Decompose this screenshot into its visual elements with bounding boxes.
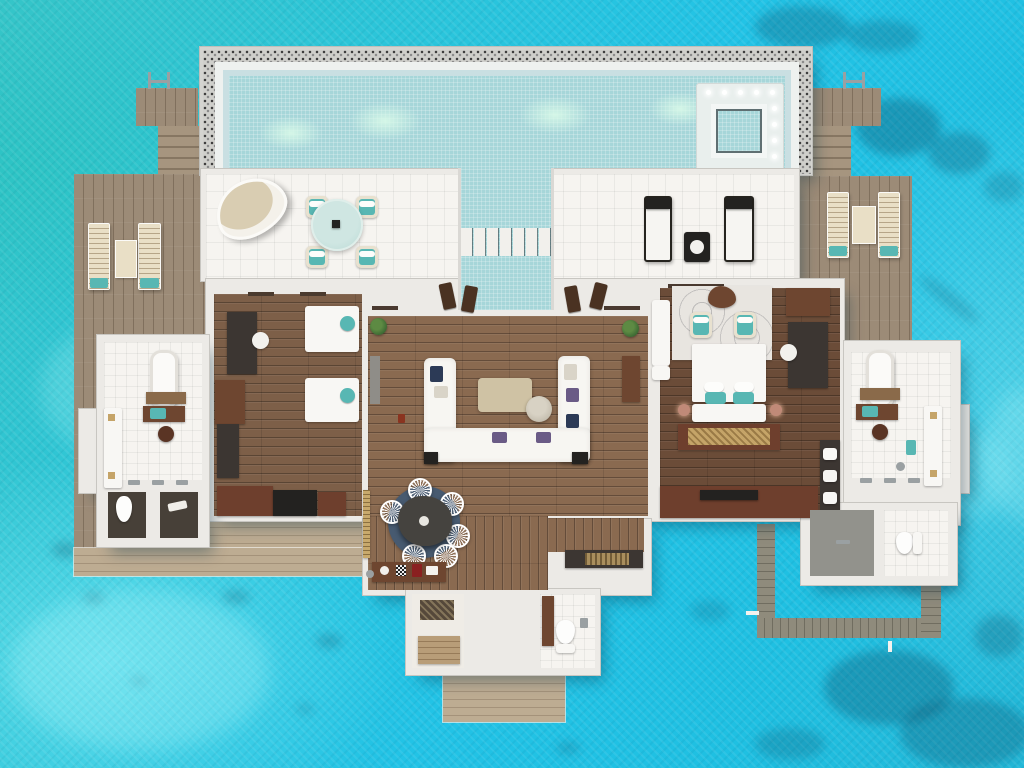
checkered-box [396, 565, 406, 576]
wc-cabinet [542, 596, 554, 646]
bedroom-chair [690, 312, 712, 338]
stepping-stone [500, 228, 511, 256]
sofa-pillow-purple [566, 388, 579, 402]
fixture [152, 480, 164, 485]
door-frame [248, 292, 274, 296]
lounger-pillow [880, 246, 898, 256]
bed-pillow [340, 316, 355, 331]
jacuzzi-light [738, 90, 743, 95]
coral-patch [900, 698, 1024, 768]
tub-shelf [860, 388, 900, 400]
coral-patch [984, 172, 1024, 202]
red-box [412, 564, 422, 577]
bedside-lamp [678, 404, 690, 416]
floor-planter [572, 452, 588, 464]
jacuzzi-light [722, 90, 727, 95]
bar-runner [585, 553, 629, 565]
jacuzzi-light [754, 90, 759, 95]
flat-tv [700, 490, 758, 500]
jacuzzi-light [770, 90, 775, 95]
frame-cleat [888, 641, 892, 652]
sofa-pillow [434, 386, 448, 398]
door-frame [604, 306, 640, 310]
bed-pillow-teal [705, 392, 726, 404]
desk-chair [252, 332, 269, 349]
bath-stool [158, 426, 174, 442]
coffee-cup [380, 566, 389, 575]
vanity-chair [780, 344, 797, 361]
water-frame-right-beam [921, 584, 941, 638]
folded-towel-teal [862, 406, 878, 417]
fixture [176, 480, 188, 485]
villa-floor-plan-render [0, 0, 1024, 768]
lounger-pillow [829, 246, 847, 256]
patio-chair [306, 246, 328, 268]
steps-right [813, 126, 851, 178]
coral-patch [222, 590, 250, 604]
fixture [128, 480, 140, 485]
potted-plant [622, 320, 639, 337]
coral-patch [316, 634, 342, 648]
towel-stack-teal [906, 440, 916, 455]
sofa-pillow [564, 364, 577, 380]
faucet-gold [108, 472, 115, 479]
faucet-gold [108, 414, 115, 421]
jacuzzi-water [716, 109, 762, 153]
coral-patch [755, 6, 850, 48]
king-bed-foot [692, 404, 766, 422]
bed-pillow-teal [733, 392, 754, 404]
jacuzzi-light [772, 122, 777, 127]
wall-panel [370, 356, 380, 404]
decor-object [398, 414, 405, 423]
stepping-stone [539, 228, 550, 256]
linen-stack [652, 366, 670, 380]
sofa-pillow-purple [536, 432, 551, 443]
coral-patch [296, 704, 314, 714]
stepping-stone [461, 228, 472, 256]
sofa-pillow-navy [430, 366, 443, 382]
entrance-deck-platform [443, 676, 565, 722]
gold-screen [363, 490, 370, 558]
sofa-pillow-navy [566, 414, 579, 428]
luggage-bench [652, 300, 670, 366]
toilet-tank [913, 532, 922, 554]
coral-patch [755, 728, 825, 760]
pool-ladder-right-icon [843, 72, 865, 89]
jacuzzi-light [772, 106, 777, 111]
fixture [884, 478, 896, 483]
shower-stall-floor [160, 492, 198, 538]
stepping-stone [513, 228, 524, 256]
patio-chair [356, 246, 378, 268]
pool-ladder-left-icon [148, 72, 170, 89]
jacuzzi [697, 84, 783, 172]
coffee-table [478, 378, 532, 412]
master-wardrobe [786, 288, 830, 316]
shelf-box [823, 492, 837, 504]
stepping-stone [526, 228, 537, 256]
coral-patch [928, 132, 990, 174]
table-centerpiece [332, 220, 340, 228]
ice-bucket [366, 570, 374, 578]
wc-sink [580, 618, 588, 628]
dresser [318, 492, 346, 516]
luggage-bench [418, 636, 460, 664]
steps-left [158, 126, 200, 178]
bedroom-chair [734, 312, 756, 338]
walkway-below-bedroom [208, 520, 368, 548]
fixture [860, 478, 872, 483]
bath-stool [872, 424, 888, 440]
pool-light-glow [349, 102, 421, 140]
chaise-headrest [726, 198, 752, 209]
tall-cabinet [217, 424, 239, 478]
toilet-tank [556, 644, 575, 653]
walkway-below-bathroom [74, 548, 368, 576]
sand-shallow [10, 590, 270, 750]
rug-ornament [708, 286, 736, 308]
stepping-stone [487, 228, 498, 256]
bed-pillow [340, 388, 355, 403]
king-bed-headboard [692, 344, 766, 402]
bar-nook-floor [548, 518, 644, 552]
fixture [908, 478, 920, 483]
pool-light-glow [259, 116, 323, 150]
frame-cleat [746, 611, 759, 615]
pool-access-platform-left [136, 88, 198, 126]
stepping-stone [474, 228, 485, 256]
shelf-box [823, 448, 837, 460]
jacuzzi-light [706, 90, 711, 95]
coral-patch [556, 742, 580, 754]
faucet-gold [930, 470, 937, 477]
potted-plant [370, 318, 387, 335]
shelf-box [823, 470, 837, 482]
chaise-headrest [646, 198, 670, 209]
pool-light-glow [519, 96, 591, 134]
sofa-bottom [424, 428, 590, 462]
lounger-pillow [140, 278, 159, 288]
water-frame-bottom-beam [757, 618, 941, 638]
woven-mat [420, 600, 454, 620]
bedside-lamp [770, 404, 782, 416]
tray [690, 240, 704, 254]
tray [426, 566, 438, 575]
coral-patch [975, 615, 1023, 657]
tv-console [273, 490, 317, 516]
table-plate [419, 516, 429, 526]
deck-table [115, 240, 137, 278]
pool-access-platform-right [813, 88, 881, 126]
folded-towel-teal [150, 408, 166, 419]
side-table [526, 396, 552, 422]
sofa-pillow-purple [492, 432, 507, 443]
shower-handle [836, 540, 850, 544]
floor-planter [424, 452, 438, 464]
coral-patch [845, 20, 920, 52]
wardrobe [215, 380, 245, 424]
jacuzzi-light [772, 154, 777, 159]
coral-patch [690, 600, 730, 622]
tub-shelf [146, 392, 186, 404]
tv-panel [622, 356, 640, 402]
bed-pillow-white [734, 382, 754, 392]
bench-inlay [688, 428, 770, 445]
jacuzzi-light [772, 138, 777, 143]
faucet-gold [930, 412, 937, 419]
dresser [217, 486, 273, 516]
door-frame [300, 292, 326, 296]
deck-table [852, 206, 876, 244]
lounger-pillow [90, 278, 108, 288]
door-frame [372, 306, 398, 310]
kettle [896, 462, 905, 471]
bed-pillow-white [704, 382, 724, 392]
